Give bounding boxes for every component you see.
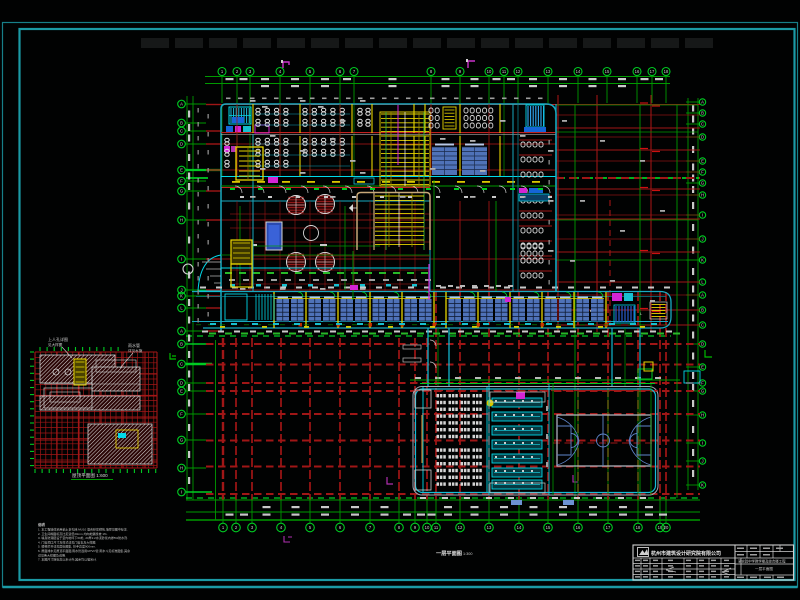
svg-text:1. 本工程墙体采用粘土多孔砖,MU10 混合砂浆砌筑,墙厚: 1. 本工程墙体采用粘土多孔砖,MU10 混合砂浆砌筑,墙厚见图中标注.: [38, 527, 128, 532]
svg-text:15: 15: [546, 525, 551, 530]
svg-text:D: D: [180, 142, 183, 147]
svg-text:18: 18: [636, 525, 641, 530]
svg-text:5. 楼梯栏杆详见国标图集, 扶手高度900mm.: 5. 楼梯栏杆详见国标图集, 扶手高度900mm.: [38, 544, 96, 549]
svg-text:12: 12: [516, 69, 521, 74]
svg-text:杭州市建筑设计研究院有限公司: 杭州市建筑设计研究院有限公司: [651, 550, 721, 557]
svg-text:见大样图: 见大样图: [48, 342, 63, 347]
svg-text:B: B: [701, 308, 704, 313]
svg-text:C: C: [701, 323, 704, 328]
svg-text:2. 卫生间楜面标高比走道低20mm,均向地漏找坡 1%.: 2. 卫生间楜面标高比走道低20mm,均向地漏找坡 1%.: [38, 531, 108, 536]
svg-text:D: D: [701, 135, 704, 140]
svg-text:18: 18: [664, 69, 669, 74]
svg-text:14: 14: [576, 69, 581, 74]
svg-text:I: I: [181, 257, 182, 262]
svg-text:C: C: [180, 129, 183, 134]
svg-text:K: K: [701, 483, 704, 488]
svg-text:B: B: [180, 342, 183, 347]
svg-text:13: 13: [487, 525, 492, 530]
svg-text:雨水管: 雨水管: [128, 342, 140, 348]
svg-text:一层平面图: 一层平面图: [755, 566, 773, 571]
svg-text:I: I: [702, 213, 703, 218]
svg-text:6. 屋面排水见屋顶平面图,雨水管选用UPVC管,雨水斗见标: 6. 屋面排水见屋顶平面图,雨水管选用UPVC管,雨水斗见标准图集.其余: [38, 548, 130, 553]
svg-text:A: A: [180, 329, 183, 334]
svg-text:H: H: [180, 466, 183, 471]
svg-text:C: C: [701, 122, 704, 127]
svg-text:上人孔详图: 上人孔详图: [48, 336, 68, 342]
svg-text:D: D: [701, 342, 704, 347]
svg-text:B: B: [180, 121, 183, 126]
svg-text:H: H: [180, 218, 183, 223]
svg-text:H: H: [701, 193, 704, 198]
svg-text:17: 17: [606, 525, 611, 530]
svg-text:A: A: [180, 102, 183, 107]
svg-text:B: B: [701, 111, 704, 116]
svg-text:16: 16: [635, 69, 640, 74]
svg-text:详见水施: 详见水施: [128, 348, 143, 353]
svg-text:E: E: [701, 159, 704, 164]
svg-text:F: F: [701, 170, 704, 175]
svg-text:J: J: [701, 459, 703, 464]
svg-text:10: 10: [425, 525, 430, 530]
svg-text:K: K: [701, 258, 704, 263]
svg-text:14: 14: [517, 525, 522, 530]
svg-text:A: A: [701, 100, 704, 105]
svg-text:10: 10: [487, 69, 492, 74]
svg-text:1:300: 1:300: [463, 552, 473, 556]
svg-text:F: F: [180, 412, 183, 417]
svg-text:K: K: [180, 294, 183, 299]
svg-text:I: I: [702, 441, 703, 446]
svg-text:G: G: [180, 189, 183, 194]
svg-text:G: G: [701, 181, 704, 186]
svg-text:15: 15: [605, 69, 610, 74]
svg-text:说明: 说明: [38, 522, 45, 527]
svg-text:4. 门窗洞口尺寸及样式详见门窗表及大样图.: 4. 门窗洞口尺寸及样式详见门窗表及大样图.: [38, 539, 96, 544]
svg-text:详见各大样图及说明.: 详见各大样图及说明.: [38, 552, 66, 557]
svg-text:F: F: [701, 381, 704, 386]
svg-text:A: A: [701, 293, 704, 298]
svg-text:12: 12: [458, 525, 463, 530]
svg-text:C: C: [180, 362, 183, 367]
svg-text:E: E: [701, 365, 704, 370]
svg-text:13: 13: [546, 69, 551, 74]
svg-text:F: F: [180, 179, 183, 184]
svg-text:G: G: [180, 438, 183, 443]
svg-text:某实验中学教学楼及综合楼工程: 某实验中学教学楼及综合楼工程: [738, 559, 786, 564]
svg-text:11: 11: [502, 69, 507, 74]
svg-text:E: E: [180, 168, 183, 173]
svg-text:3. 墙身防潮层设于室内地坪下60处, 20厚1:2水泥砂浆: 3. 墙身防潮层设于室内地坪下60处, 20厚1:2水泥砂浆内掺5%防水剂.: [38, 535, 128, 540]
svg-text:E: E: [180, 389, 183, 394]
svg-text:16: 16: [576, 525, 581, 530]
svg-text:H: H: [701, 413, 704, 418]
svg-text:11: 11: [434, 525, 439, 530]
svg-text:J: J: [701, 237, 703, 242]
svg-text:17: 17: [650, 69, 655, 74]
svg-text:I: I: [181, 490, 182, 495]
svg-text:一层平面图: 一层平面图: [436, 549, 462, 557]
svg-text:20: 20: [664, 525, 669, 530]
svg-text:7. 本图尺寸除标高以米计外,其余均以毫米计.: 7. 本图尺寸除标高以米计外,其余均以毫米计.: [38, 557, 97, 562]
svg-text:D: D: [180, 381, 183, 386]
svg-text:G: G: [701, 389, 704, 394]
